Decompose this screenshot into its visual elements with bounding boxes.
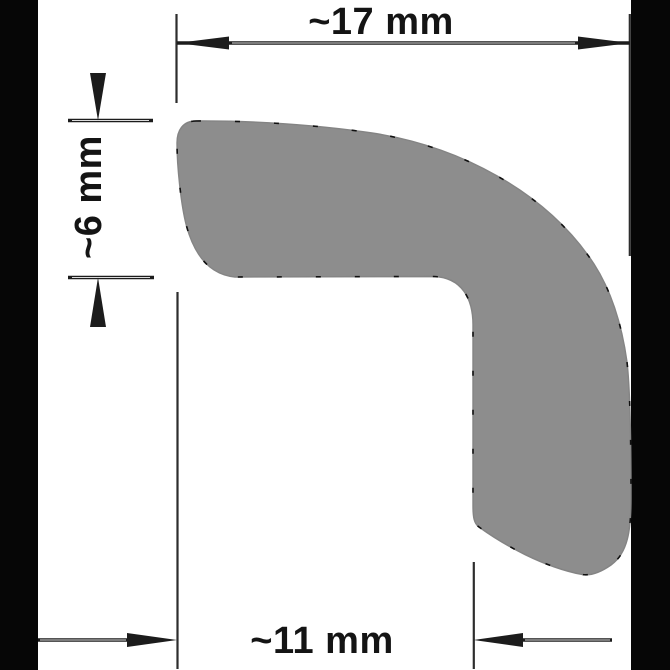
dimension-label-top-width: ~17 mm: [308, 1, 454, 43]
right-scan-edge-bar: [631, 0, 670, 670]
technical-drawing-svg: ~17 mm ~6 mm ~11 mm: [0, 0, 670, 670]
left-scan-edge-bar: [0, 0, 38, 670]
dimension-label-bottom-width: ~11 mm: [250, 620, 394, 662]
dimension-label-left-height: ~6 mm: [68, 135, 110, 259]
scanned-technical-drawing: ~17 mm ~6 mm ~11 mm: [0, 0, 670, 670]
